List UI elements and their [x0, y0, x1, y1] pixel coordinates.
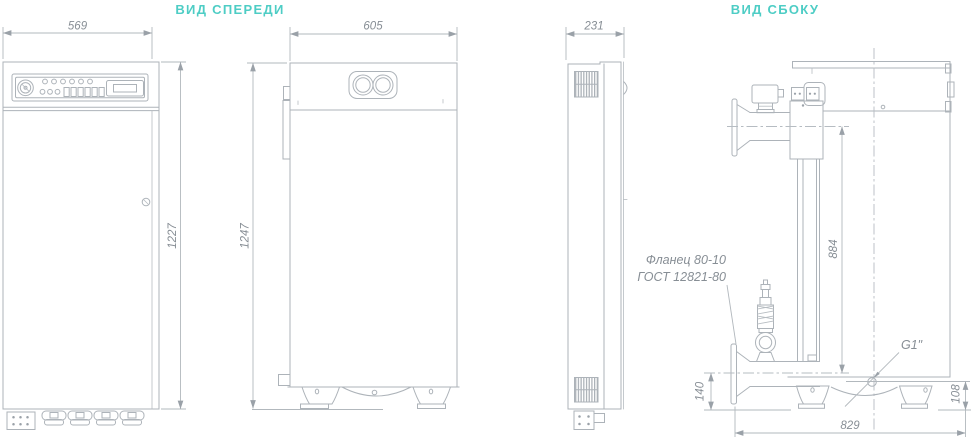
dim-text-884: 884 [828, 239, 840, 258]
cable-glands [42, 411, 144, 425]
vent-grille-top [575, 72, 599, 98]
technical-drawing: ВИД СПЕРЕДИ ВИД СБОКУ [0, 0, 980, 439]
terminal-connectors [792, 83, 826, 106]
dim-text-829: 829 [840, 420, 860, 432]
flowmeter-assembly [732, 83, 825, 160]
front-view-control-cabinet [3, 62, 159, 430]
terminal-box-side [574, 411, 605, 430]
lower-pipe-flange [731, 344, 820, 404]
dimension-cabinet-height: 1227 [161, 62, 186, 409]
knob-side-profile [624, 82, 628, 95]
dimension-depth: 231 [566, 21, 624, 61]
door-hinges [279, 87, 291, 386]
flange-note-line2: ГОСТ 12821-80 [637, 270, 726, 284]
front-view-boiler [279, 63, 460, 409]
dimension-boiler-width: 605 [290, 21, 457, 62]
drain-connection: G1" [845, 338, 923, 407]
dimension-flange-span: 884 [828, 127, 842, 374]
dim-text-569: 569 [68, 21, 88, 33]
drain-thread-label: G1" [901, 338, 923, 352]
drawing-canvas: ВИД СПЕРЕДИ ВИД СБОКУ [0, 0, 980, 439]
dim-text-108: 108 [951, 384, 963, 404]
boiler-legs [288, 387, 459, 409]
dim-text-1227: 1227 [167, 223, 179, 249]
safety-valve-icon [756, 280, 776, 362]
assembly-legs [797, 386, 933, 408]
dimension-base-depth: 829 [735, 407, 966, 438]
flange-note-line1: Фланец 80-10 [646, 253, 726, 267]
side-view-cabinet-depth [568, 62, 627, 430]
front-view-title: ВИД СПЕРЕДИ [175, 2, 284, 17]
vent-grille-bottom [575, 378, 599, 403]
dim-text-231: 231 [583, 21, 603, 33]
vertical-pipe [798, 159, 820, 362]
terminal-box [7, 412, 35, 430]
power-knob-icon [18, 80, 34, 96]
sensor-head-icon [752, 85, 784, 113]
dim-text-1247: 1247 [240, 223, 252, 249]
side-view-title: ВИД СБОКУ [731, 2, 820, 17]
dimension-cabinet-width: 569 [3, 21, 152, 60]
dim-text-605: 605 [363, 21, 383, 33]
dim-text-140: 140 [695, 381, 707, 401]
flange-annotation: Фланец 80-10 ГОСТ 12821-80 [637, 253, 736, 344]
